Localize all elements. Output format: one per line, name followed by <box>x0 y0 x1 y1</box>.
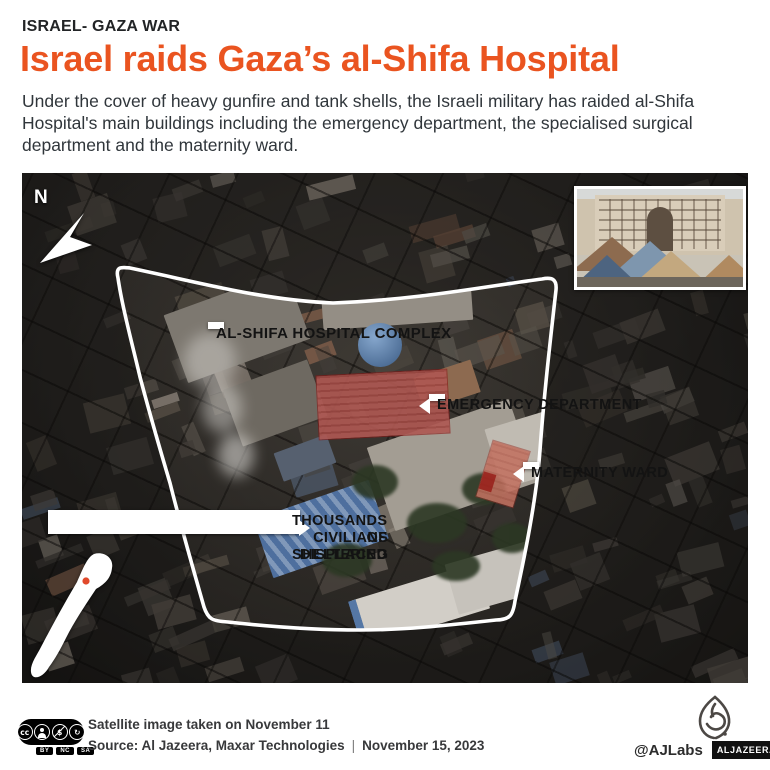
maternity-label: MATERNITY WARD <box>523 462 539 469</box>
creative-commons-badge: cc $ ↻ <box>18 719 84 745</box>
source-label: Source: Al Jazeera, Maxar Technologies <box>88 738 345 753</box>
page-title: Israel raids Gaza’s al-Shifa Hospital <box>20 38 620 80</box>
source-line: Source: Al Jazeera, Maxar Technologies|N… <box>88 738 484 753</box>
emergency-label: EMERGENCY DEPARTMENT <box>429 394 445 401</box>
gaza-city-marker <box>82 577 89 584</box>
publish-date: November 15, 2023 <box>362 738 484 753</box>
infographic-page: ISRAEL- GAZA WAR Israel raids Gaza’s al-… <box>0 0 770 770</box>
byline-row: @AJLabs ALJAZEERA <box>634 741 770 759</box>
cc-sa-arrow-icon: ↻ <box>69 724 85 740</box>
credit-block: Satellite image taken on November 11 Sou… <box>88 717 484 753</box>
gaza-strip-locator-map <box>26 551 122 683</box>
north-arrow-icon <box>36 209 98 267</box>
cc-license-tags: BY NC SA <box>36 747 94 755</box>
intro-text: Under the cover of heavy gunfire and tan… <box>22 90 744 156</box>
aljazeera-wordmark: ALJAZEERA <box>712 741 770 759</box>
satellite-map: N AL-SHIFA HOSPITAL COMPLEX EMERGENCY DE… <box>22 173 748 683</box>
kicker: ISRAEL- GAZA WAR <box>22 18 180 36</box>
cc-nc-dollar-icon: $ <box>52 724 68 740</box>
label-arrow-left-icon <box>419 398 430 414</box>
ajlabs-handle: @AJLabs <box>634 742 703 759</box>
cc-by-person-icon <box>34 724 50 740</box>
satellite-caption: Satellite image taken on November 11 <box>88 717 484 732</box>
complex-label: AL-SHIFA HOSPITAL COMPLEX <box>208 322 224 329</box>
north-label: N <box>34 187 48 209</box>
separator: | <box>345 738 363 753</box>
displaced-label: THOUSANDS OF DISPLACED CIVILIANS SHELTER… <box>48 510 300 534</box>
cc-icon: cc <box>17 724 33 740</box>
label-arrow-left-icon <box>513 466 524 482</box>
hospital-photo-inset <box>574 186 746 290</box>
al-jazeera-flame-logo-icon <box>692 694 738 740</box>
